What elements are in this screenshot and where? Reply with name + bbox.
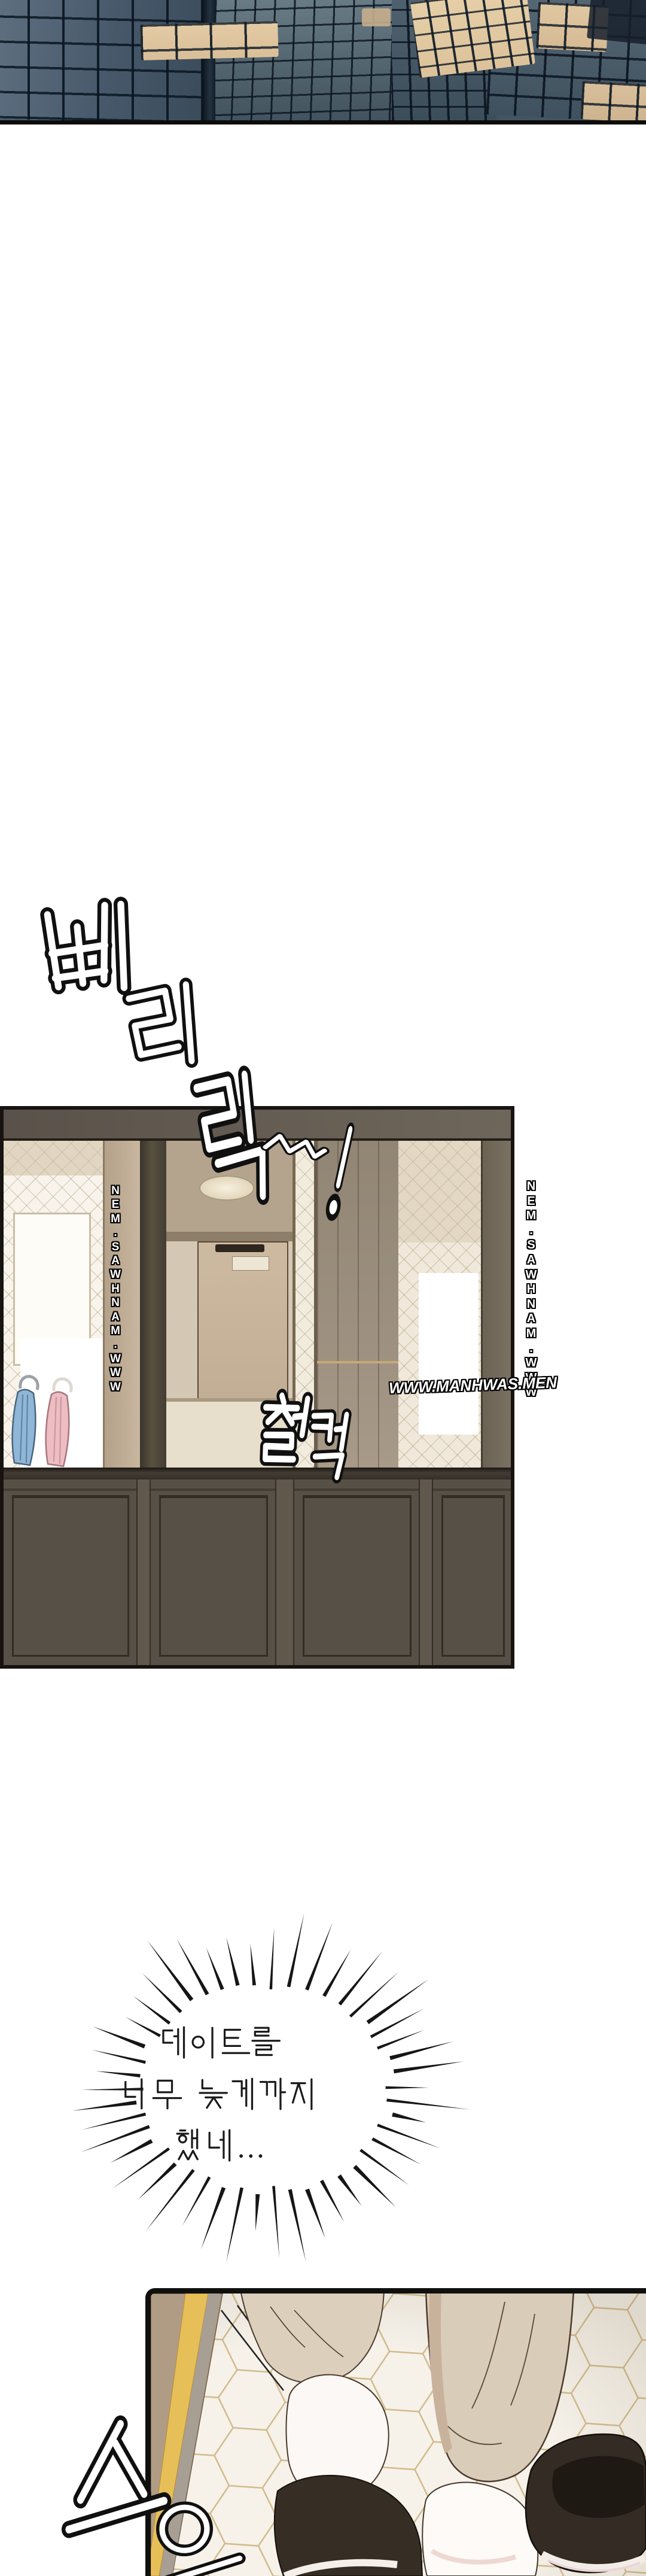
watermark-letter: M bbox=[111, 1212, 120, 1226]
watermark-letter: H bbox=[527, 1282, 535, 1297]
webtoon-page: WWW.MANHWAS.MEN NEM.SAWHNAM.WWW WWW.MANH… bbox=[0, 0, 646, 2576]
ceiling-light bbox=[199, 1175, 254, 1201]
watermark-letter: A bbox=[111, 1310, 120, 1324]
frosted-glass-right bbox=[398, 1141, 481, 1468]
sfx-glyph bbox=[223, 2030, 249, 2053]
sfx-glyph bbox=[193, 2028, 212, 2058]
sfx-glyph bbox=[177, 2130, 197, 2159]
watermark-letter: E bbox=[527, 1194, 535, 1209]
door-closer bbox=[215, 1244, 264, 1252]
glass-tint bbox=[4, 1141, 103, 1175]
sfx-glyph bbox=[153, 2080, 181, 2108]
watermark-letter: M bbox=[526, 1326, 537, 1341]
watermark-letter: . bbox=[114, 1226, 117, 1240]
panel-stile bbox=[419, 1480, 433, 1665]
watermark-letter: . bbox=[114, 1338, 117, 1351]
umbrella-pink bbox=[46, 1392, 69, 1466]
watermark-letter: W bbox=[526, 1268, 537, 1283]
watermark-letter: A bbox=[527, 1253, 535, 1268]
panel-groove bbox=[4, 1489, 511, 1491]
sfx-glyph bbox=[239, 2154, 262, 2158]
sfx-glyph bbox=[163, 2027, 184, 2058]
dark-frame-pillar bbox=[140, 1141, 166, 1468]
transom-beam bbox=[4, 1468, 511, 1480]
umbrella-hook-blue bbox=[20, 1377, 38, 1390]
building-left bbox=[0, 0, 208, 124]
interior-floor bbox=[166, 1398, 292, 1468]
sfx-glyph bbox=[291, 2079, 311, 2109]
sfx-glyph bbox=[261, 2079, 285, 2109]
frosted-glass-left bbox=[4, 1141, 103, 1468]
watermark-letter: W bbox=[110, 1380, 121, 1394]
sunlight-reflection bbox=[140, 21, 278, 60]
panel-city-border bbox=[0, 120, 646, 124]
watermark-letter: H bbox=[111, 1282, 120, 1296]
recessed-panel bbox=[159, 1495, 268, 1657]
panel-stile bbox=[275, 1480, 294, 1665]
watermark-letter: . bbox=[529, 1341, 533, 1356]
slipper-opening bbox=[552, 2456, 645, 2518]
watermark-letter: N bbox=[111, 1296, 120, 1310]
corner-shadow bbox=[587, 0, 646, 45]
sunlight-reflection bbox=[580, 81, 646, 123]
watermark-letter: M bbox=[111, 1324, 120, 1338]
recessed-panel bbox=[303, 1495, 412, 1657]
plank-highlight bbox=[317, 1361, 398, 1363]
right-frame bbox=[481, 1141, 511, 1468]
watermark-letter: S bbox=[112, 1240, 120, 1254]
entryway-scene bbox=[151, 2294, 646, 2576]
panel-stile bbox=[136, 1480, 151, 1665]
sfx-glyph bbox=[209, 2130, 229, 2161]
watermark-right: WWW.MANHWAS.MEN NEM.SAWHNAM.WWW bbox=[520, 1179, 543, 1400]
lower-panel-band bbox=[4, 1480, 511, 1665]
sfx-glyph bbox=[233, 2079, 252, 2109]
umbrella-blue bbox=[13, 1390, 36, 1465]
sfx-glyph bbox=[47, 904, 127, 992]
sfx-glyph bbox=[126, 2079, 142, 2109]
plank-wall bbox=[317, 1141, 398, 1468]
watermark-letter: M bbox=[526, 1208, 537, 1223]
watermark-left: WWW.MANHWAS.MEN NEM.SAWHNAM.WWW bbox=[105, 1184, 126, 1394]
watermark-letter: E bbox=[112, 1198, 120, 1211]
watermark-letter: W bbox=[526, 1356, 537, 1371]
door-lintel bbox=[166, 1232, 292, 1241]
recessed-panel bbox=[441, 1495, 505, 1657]
recessed-panel bbox=[12, 1495, 129, 1657]
watermark-letter: W bbox=[110, 1268, 121, 1281]
sfx-glyph bbox=[128, 985, 194, 1067]
sunlight-reflection bbox=[362, 8, 391, 26]
watermark-letter: S bbox=[527, 1238, 535, 1253]
watermark-letter: N bbox=[527, 1179, 535, 1194]
sfx-glyph bbox=[252, 2028, 279, 2055]
watermark-letter: A bbox=[111, 1254, 120, 1268]
watermark-letter: . bbox=[529, 1223, 533, 1238]
bright-light bbox=[419, 1273, 479, 1435]
sfx-glyph bbox=[200, 2080, 227, 2107]
glass-tint bbox=[398, 1141, 481, 1243]
umbrellas bbox=[4, 1366, 103, 1468]
umbrella-hook-pink bbox=[54, 1379, 71, 1392]
panel-entryway bbox=[145, 2288, 646, 2576]
panel-city bbox=[0, 0, 646, 124]
watermark-letter: W bbox=[110, 1366, 121, 1380]
frosted-sidelight bbox=[292, 1141, 317, 1468]
watermark-letter: N bbox=[111, 1184, 120, 1198]
door-plate bbox=[232, 1256, 269, 1271]
watermark-letter: N bbox=[527, 1297, 535, 1312]
door-header-beam bbox=[4, 1110, 511, 1141]
interior-view bbox=[166, 1141, 292, 1468]
watermark-letter: A bbox=[527, 1311, 535, 1326]
watermark-letter: W bbox=[110, 1352, 121, 1366]
